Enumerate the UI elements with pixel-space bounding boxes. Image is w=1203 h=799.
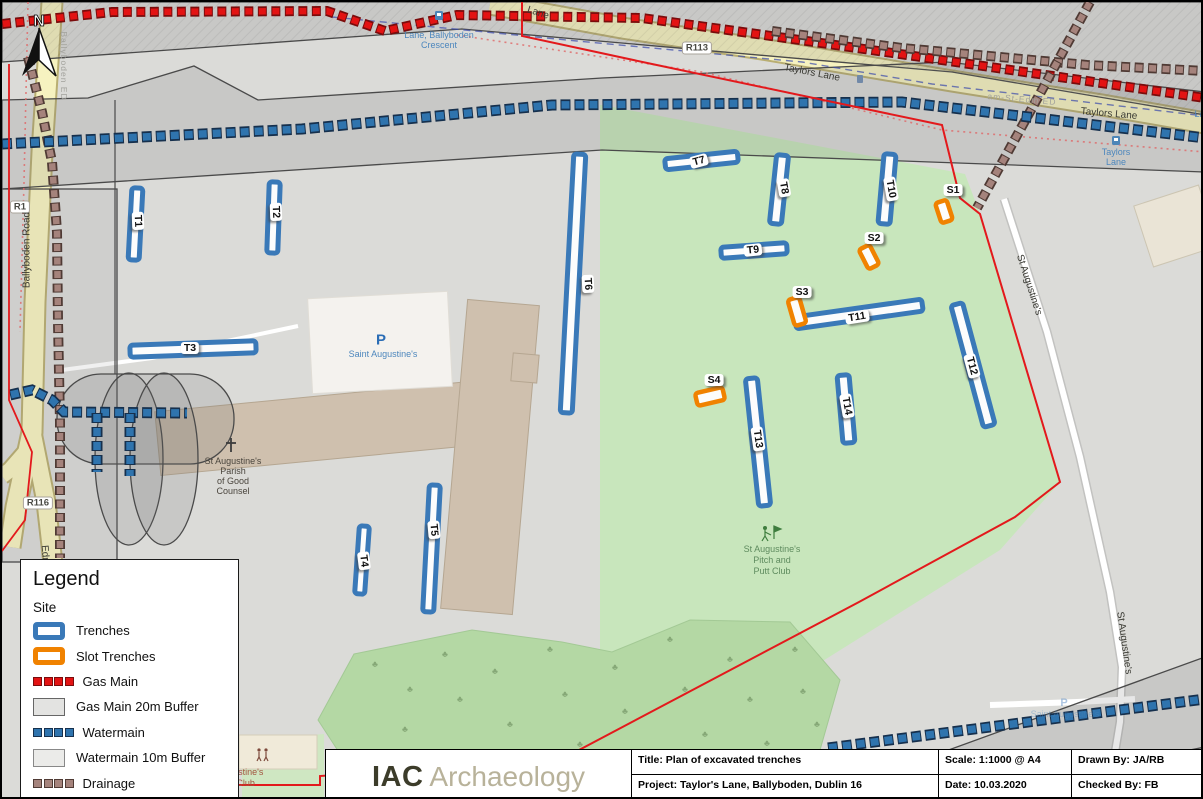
map-canvas: ♣♣♣♣♣♣♣♣♣♣♣♣♣♣♣♣♣♣♣♣♣♣♣♣♣ — [0, 0, 1203, 799]
trench-t14 — [837, 375, 855, 444]
svg-text:♣: ♣ — [507, 719, 513, 729]
svg-text:♣: ♣ — [547, 644, 553, 654]
water-dash-symbol — [33, 728, 74, 737]
titleblock-checked-by: Checked By: FB — [1071, 774, 1203, 798]
svg-text:♣: ♣ — [764, 738, 770, 748]
legend-item-drain-dash: Drainage — [33, 770, 238, 795]
titleblock-drawn-by: Drawn By: JA/RB — [1071, 750, 1203, 774]
svg-text:♣: ♣ — [747, 694, 753, 704]
drain-dash-symbol — [33, 779, 74, 788]
trench-t9 — [721, 243, 788, 259]
titleblock-project: Project: Taylor's Lane, Ballyboden, Dubl… — [631, 774, 938, 798]
svg-text:♣: ♣ — [407, 684, 413, 694]
legend-label: Gas Main 20m Buffer — [76, 699, 199, 714]
legend-item-gas-buffer: Gas Main 20m Buffer — [33, 694, 238, 719]
legend-label: Trenches — [76, 623, 130, 638]
svg-text:♣: ♣ — [562, 689, 568, 699]
svg-text:♣: ♣ — [702, 729, 708, 739]
titleblock-date: Date: 10.03.2020 — [938, 774, 1071, 798]
legend-item-water-dash: Watermain — [33, 720, 238, 745]
slot-symbol — [33, 647, 65, 665]
svg-text:♣: ♣ — [667, 634, 673, 644]
youth-club-building — [239, 735, 317, 769]
svg-text:♣: ♣ — [402, 724, 408, 734]
titleblock-scale: Scale: 1:1000 @ A4 — [938, 750, 1071, 774]
water-buffer-symbol — [33, 749, 65, 767]
legend-item-slot: Slot Trenches — [33, 643, 238, 668]
parking-area — [308, 291, 453, 393]
legend-title: Legend — [33, 568, 238, 591]
svg-text:♣: ♣ — [492, 666, 498, 676]
legend-item-water-buffer: Watermain 10m Buffer — [33, 745, 238, 770]
trench-symbol — [33, 622, 65, 640]
title-block: IAC Archaeology Title: Plan of excavated… — [325, 749, 1203, 799]
legend-label: Drainage — [83, 776, 136, 791]
legend-label: Watermain — [83, 725, 145, 740]
logo-strong-text: IAC — [372, 761, 423, 794]
gas-buffer-symbol — [33, 698, 65, 716]
titleblock-title: Title: Plan of excavated trenches — [631, 750, 938, 774]
legend-item-trench: Trenches — [33, 618, 238, 643]
svg-text:♣: ♣ — [814, 719, 820, 729]
trench-t4 — [355, 526, 370, 595]
trench-t10 — [878, 154, 896, 225]
iac-archaeology-logo: IAC Archaeology — [326, 750, 631, 799]
svg-text:♣: ♣ — [792, 644, 798, 654]
trench-t2 — [267, 182, 280, 253]
legend-subtitle: Site — [33, 600, 238, 615]
svg-text:♣: ♣ — [622, 706, 628, 716]
legend-label: Gas Main — [83, 674, 139, 689]
svg-text:♣: ♣ — [800, 686, 806, 696]
legend-label: Watermain 10m Buffer — [76, 750, 205, 765]
legend-label: Slot Trenches — [76, 649, 156, 664]
svg-text:♣: ♣ — [612, 662, 618, 672]
svg-text:♣: ♣ — [457, 694, 463, 704]
svg-text:N: N — [33, 13, 45, 30]
trench-t1 — [128, 188, 143, 260]
gas-dash-symbol — [33, 677, 74, 686]
legend-item-gas-dash: Gas Main — [33, 669, 238, 694]
svg-text:♣: ♣ — [372, 659, 378, 669]
legend-panel: Legend Site TrenchesSlot TrenchesGas Mai… — [20, 559, 239, 799]
trench-t3 — [130, 341, 256, 357]
svg-text:♣: ♣ — [442, 649, 448, 659]
svg-text:♣: ♣ — [727, 654, 733, 664]
logo-light-text: Archaeology — [429, 761, 585, 793]
